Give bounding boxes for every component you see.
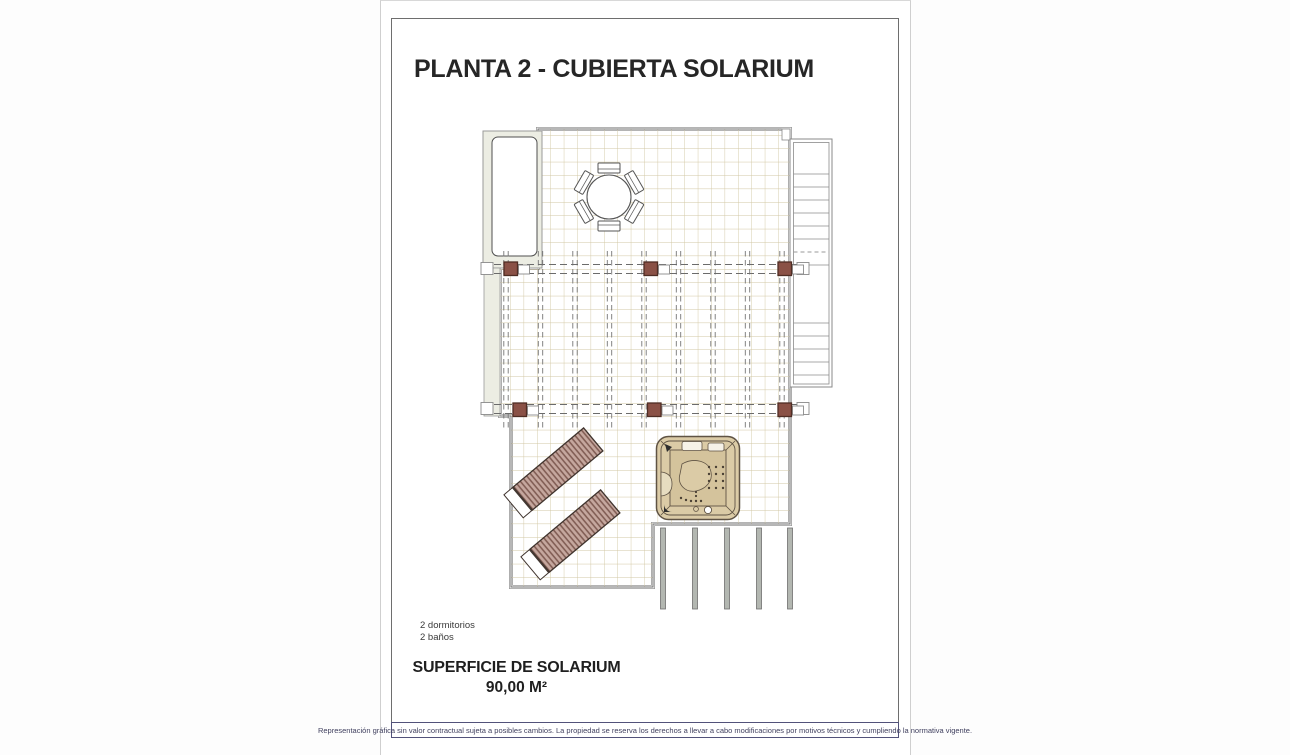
bedrooms-note: 2 dormitorios (420, 620, 475, 632)
staircase (782, 129, 832, 387)
disclaimer-text: Representación gráfica sin valor contrac… (318, 726, 972, 735)
porch-columns (661, 528, 793, 609)
area-label: SUPERFICIE DE SOLARIUM (396, 659, 637, 677)
bathrooms-note: 2 baños (420, 632, 475, 644)
disclaimer-box: Representación gráfica sin valor contrac… (391, 722, 899, 738)
unit-annotations: 2 dormitorios 2 baños (420, 620, 475, 644)
screenshot-canvas: PLANTA 2 - CUBIERTA SOLARIUM (0, 0, 1290, 755)
terrace-outline (500, 129, 790, 587)
area-block: SUPERFICIE DE SOLARIUM 90,00 M² (396, 659, 637, 697)
round-table (587, 175, 631, 219)
area-value: 90,00 M² (396, 679, 637, 697)
drawing-sheet: PLANTA 2 - CUBIERTA SOLARIUM (380, 0, 911, 755)
jacuzzi (657, 437, 740, 520)
